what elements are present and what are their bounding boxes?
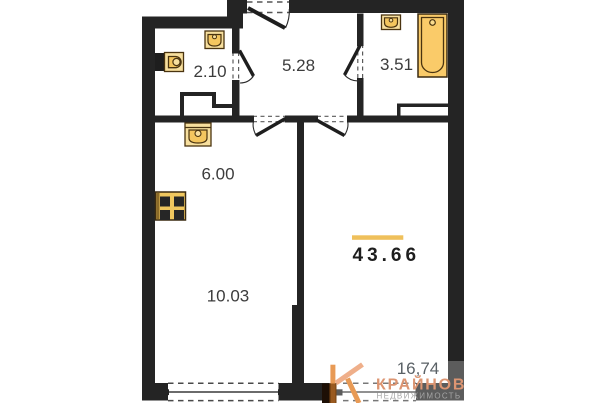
svg-text:3.51: 3.51 (380, 55, 413, 74)
svg-text:43.66: 43.66 (353, 245, 421, 266)
svg-text:НЕДВИЖИМОСТЬ: НЕДВИЖИМОСТЬ (377, 391, 462, 400)
svg-text:16,74: 16,74 (397, 359, 440, 378)
svg-text:5.28: 5.28 (282, 56, 315, 75)
svg-text:10.03: 10.03 (207, 287, 250, 306)
svg-text:2.10: 2.10 (193, 62, 226, 81)
svg-text:6.00: 6.00 (201, 165, 234, 184)
